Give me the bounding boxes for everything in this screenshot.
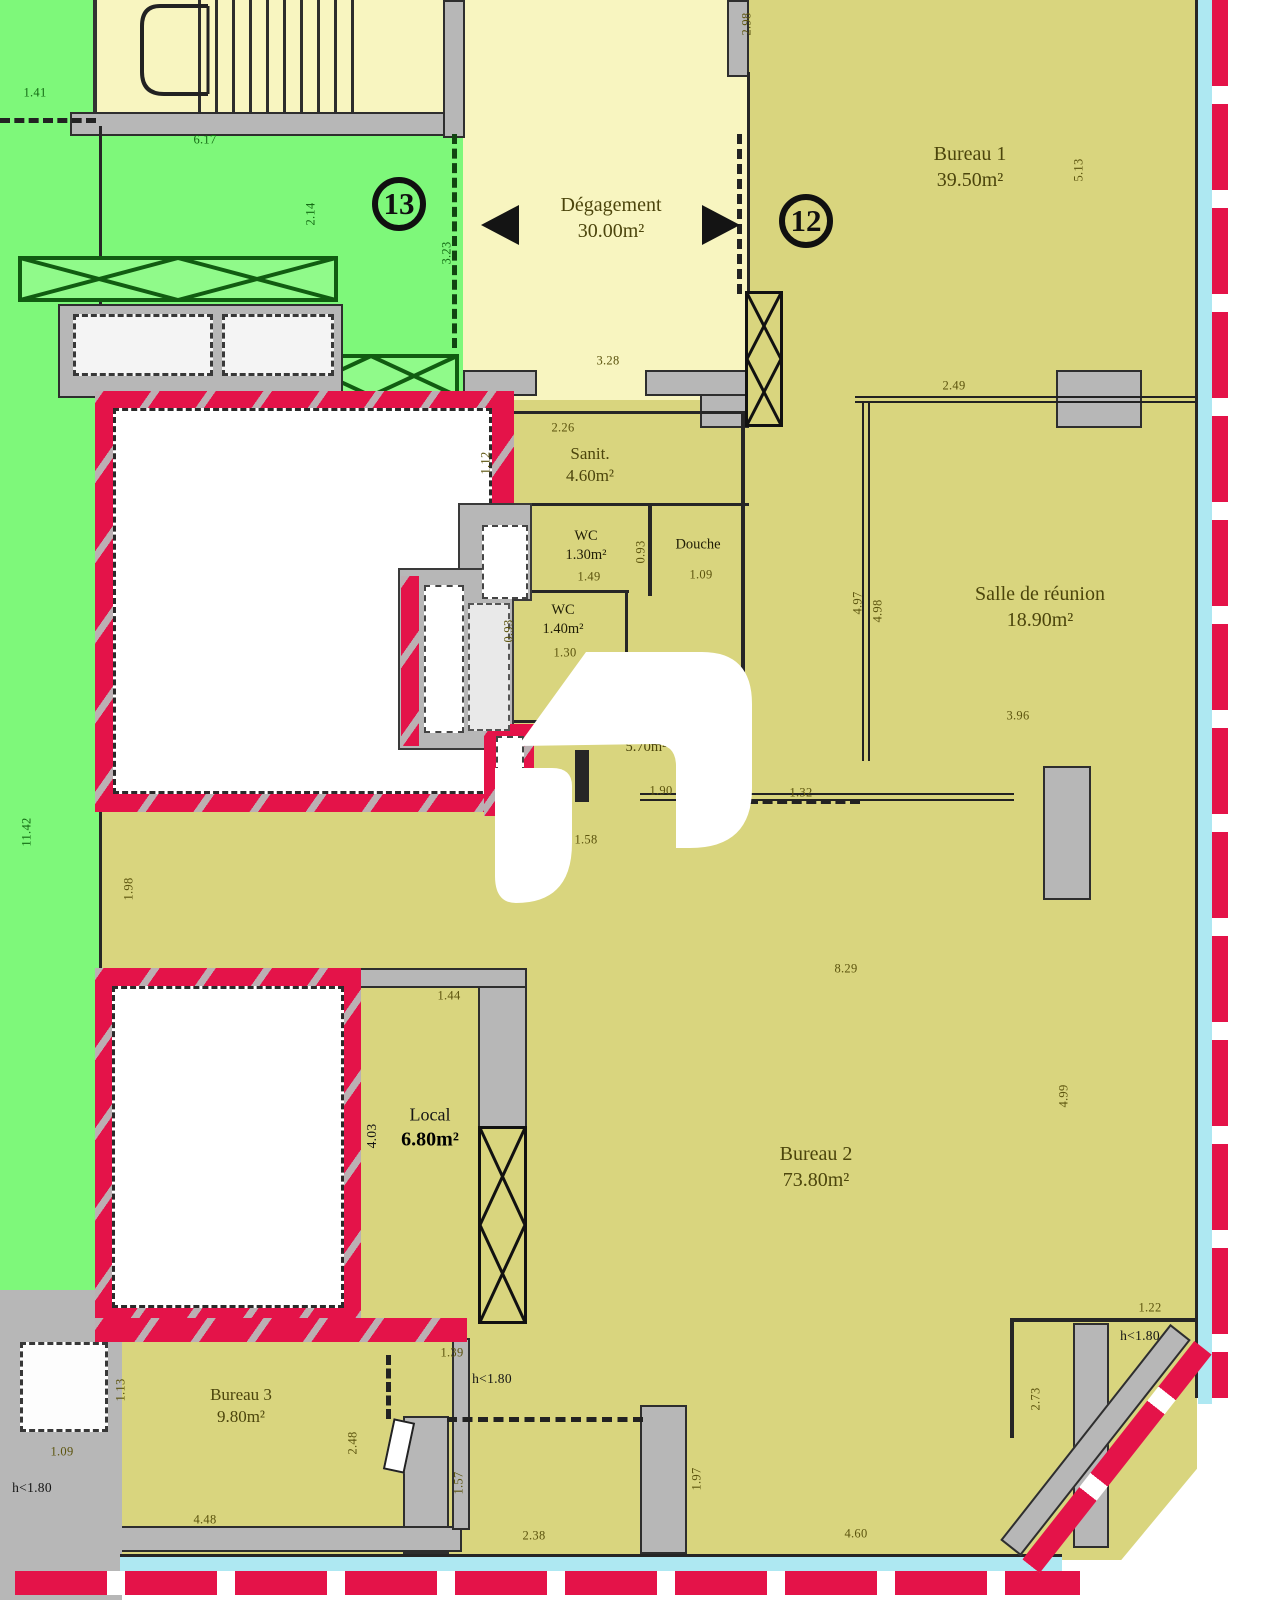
floor-plan: Dégagement30.00m²Bureau 139.50m²Salle de… (0, 0, 1279, 1600)
logo-watermark (0, 0, 1279, 1600)
